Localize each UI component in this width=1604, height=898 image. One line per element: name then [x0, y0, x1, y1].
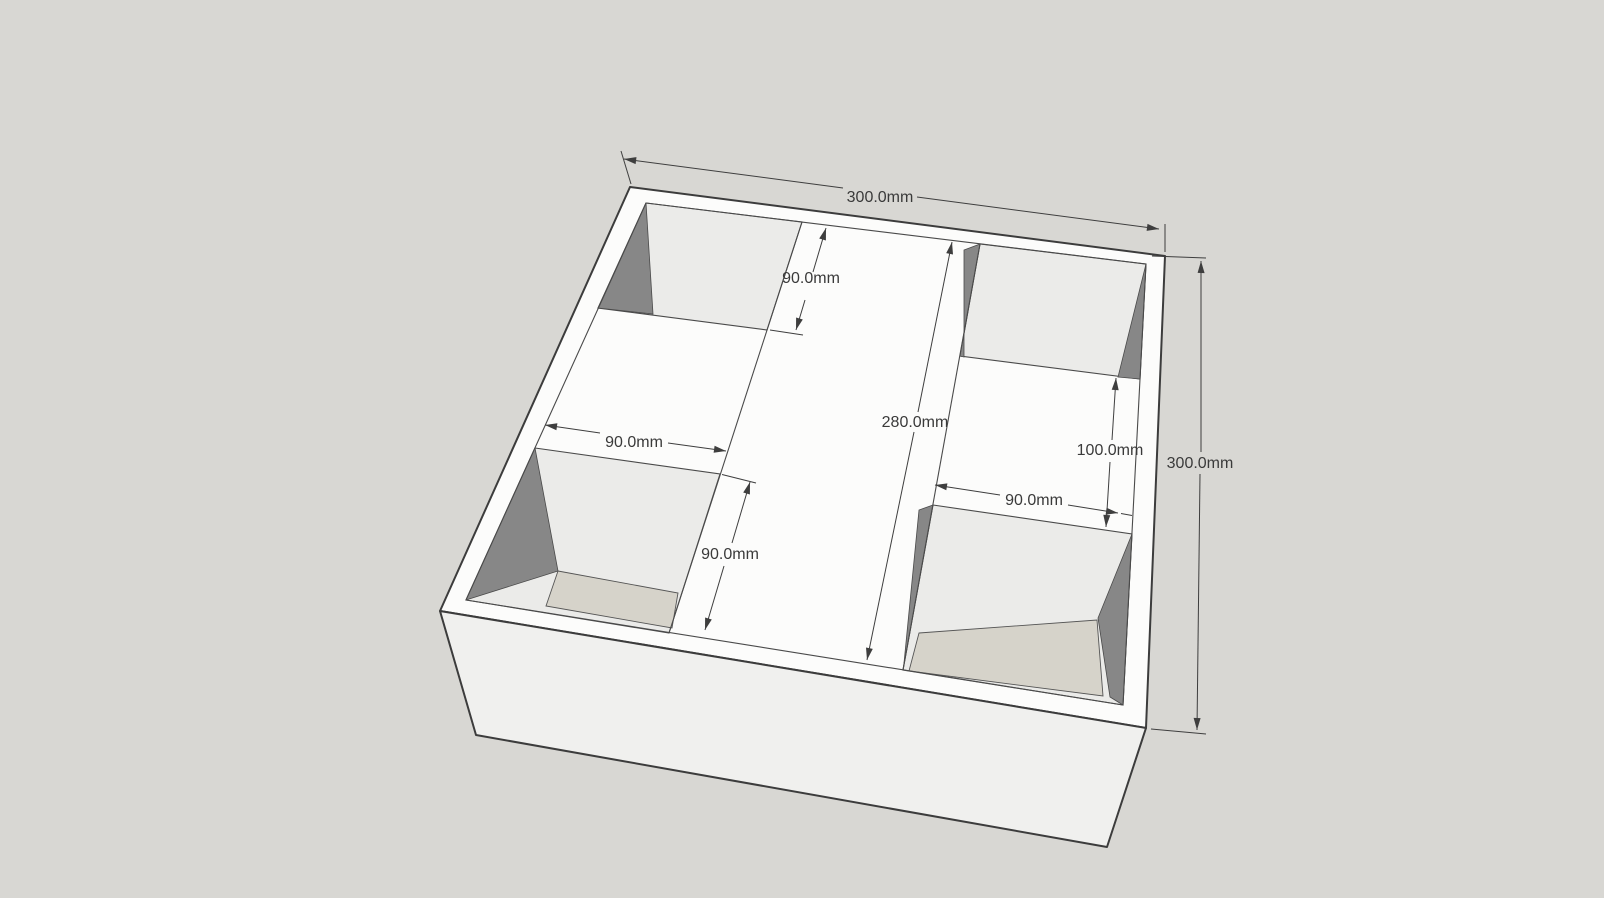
- dim-label-overall-depth-right[interactable]: 300.0mm: [1167, 455, 1234, 472]
- pocket-back-right[interactable]: [960, 244, 1146, 379]
- 3d-scene: 300.0mm 90.0mm 280.0mm 100.0mm 300.0mm: [0, 0, 1604, 898]
- dim-label-right-pocket-gap[interactable]: 100.0mm: [1077, 442, 1144, 459]
- model-viewport: 300.0mm 90.0mm 280.0mm 100.0mm 300.0mm: [0, 0, 1604, 898]
- dim-label-left-pocket-width[interactable]: 90.0mm: [605, 434, 663, 451]
- dim-label-front-left-pocket-depth[interactable]: 90.0mm: [701, 546, 759, 563]
- dim-label-right-pocket-width[interactable]: 90.0mm: [1005, 492, 1063, 509]
- dim-label-back-pocket-depth[interactable]: 90.0mm: [782, 270, 840, 287]
- dim-label-interior-length[interactable]: 280.0mm: [882, 414, 949, 431]
- dim-label-overall-width-top[interactable]: 300.0mm: [847, 189, 914, 206]
